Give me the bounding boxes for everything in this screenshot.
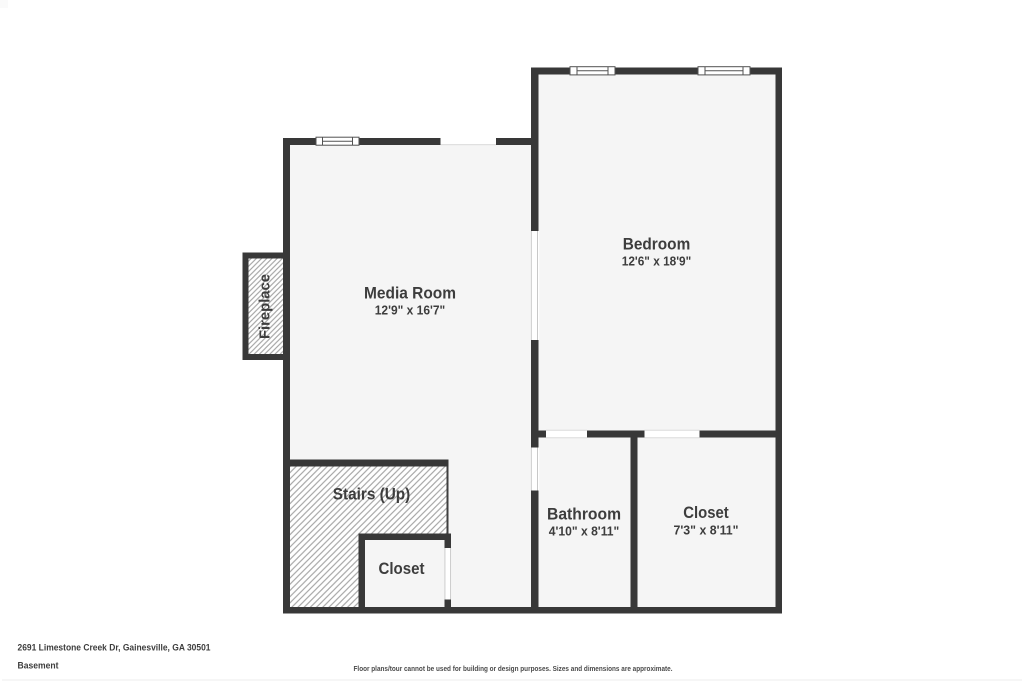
svg-text:Stairs (Up): Stairs (Up) (333, 485, 411, 504)
svg-text:Bathroom: Bathroom (547, 505, 621, 524)
svg-text:2691 Limestone Creek Dr, Gaine: 2691 Limestone Creek Dr, Gainesville, GA… (18, 643, 212, 654)
svg-text:Media Room: Media Room (364, 284, 456, 303)
svg-text:Fireplace: Fireplace (258, 274, 274, 339)
svg-text:Bedroom: Bedroom (623, 235, 691, 254)
svg-text:12'6" x 18'9": 12'6" x 18'9" (622, 255, 692, 269)
svg-text:7'3" x 8'11": 7'3" x 8'11" (674, 524, 739, 538)
svg-text:Basement: Basement (18, 661, 60, 672)
svg-text:12'9" x 16'7": 12'9" x 16'7" (375, 304, 446, 318)
svg-text:Floor plans/tour cannot be use: Floor plans/tour cannot be used for buil… (354, 664, 673, 673)
svg-text:4'10" x 8'11": 4'10" x 8'11" (549, 525, 620, 539)
svg-text:Closet: Closet (683, 503, 729, 522)
svg-text:Closet: Closet (379, 559, 425, 578)
